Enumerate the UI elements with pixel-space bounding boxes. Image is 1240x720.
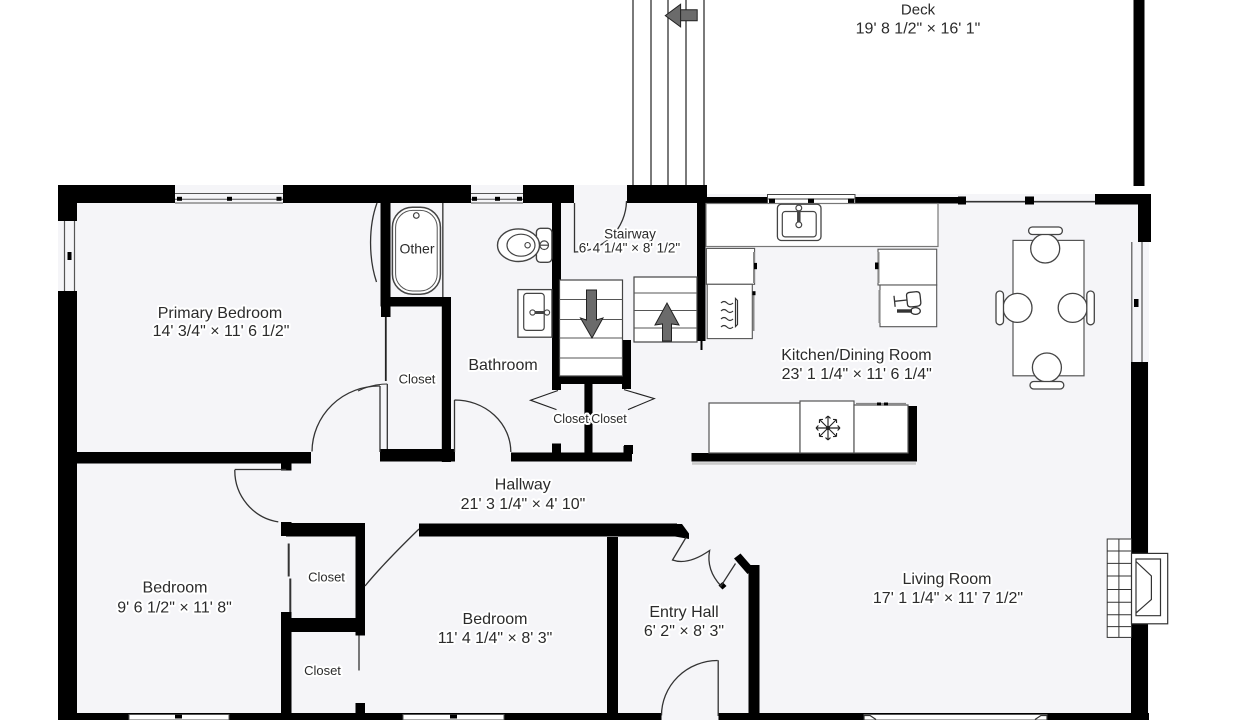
svg-text:Closet: Closet [399,372,436,387]
svg-text:Bathroom: Bathroom [468,357,537,374]
svg-text:23' 1 1/4" × 11' 6 1/4": 23' 1 1/4" × 11' 6 1/4" [782,366,932,383]
svg-text:Closet: Closet [304,663,341,678]
svg-text:14' 3/4" × 11' 6 1/2": 14' 3/4" × 11' 6 1/2" [153,323,290,340]
svg-text:Living Room: Living Room [903,571,992,588]
svg-text:Primary Bedroom: Primary Bedroom [158,305,282,322]
svg-text:Other: Other [399,241,434,257]
svg-text:Bedroom: Bedroom [143,580,208,597]
svg-text:Closet: Closet [308,570,345,585]
svg-text:11' 4 1/4" × 8' 3": 11' 4 1/4" × 8' 3" [438,630,553,647]
svg-text:Stairway: Stairway [604,227,656,242]
svg-text:Closet: Closet [591,412,627,426]
svg-text:Deck: Deck [901,2,936,19]
svg-text:Entry Hall: Entry Hall [649,604,718,621]
svg-text:Hallway: Hallway [495,476,551,493]
svg-text:17' 1 1/4" × 11' 7 1/2": 17' 1 1/4" × 11' 7 1/2" [873,590,1023,607]
svg-text:Closet: Closet [553,412,589,426]
svg-text:21' 3 1/4" × 4' 10": 21' 3 1/4" × 4' 10" [461,496,586,513]
svg-text:Kitchen/Dining Room: Kitchen/Dining Room [781,347,931,364]
svg-text:6' 2" × 8' 3": 6' 2" × 8' 3" [644,623,724,640]
svg-text:Bedroom: Bedroom [463,611,528,628]
svg-text:6' 4 1/4" × 8' 1/2": 6' 4 1/4" × 8' 1/2" [579,241,681,256]
svg-text:9' 6 1/2" × 11' 8": 9' 6 1/2" × 11' 8" [117,600,232,617]
svg-text:19' 8 1/2" × 16' 1": 19' 8 1/2" × 16' 1" [856,21,981,38]
